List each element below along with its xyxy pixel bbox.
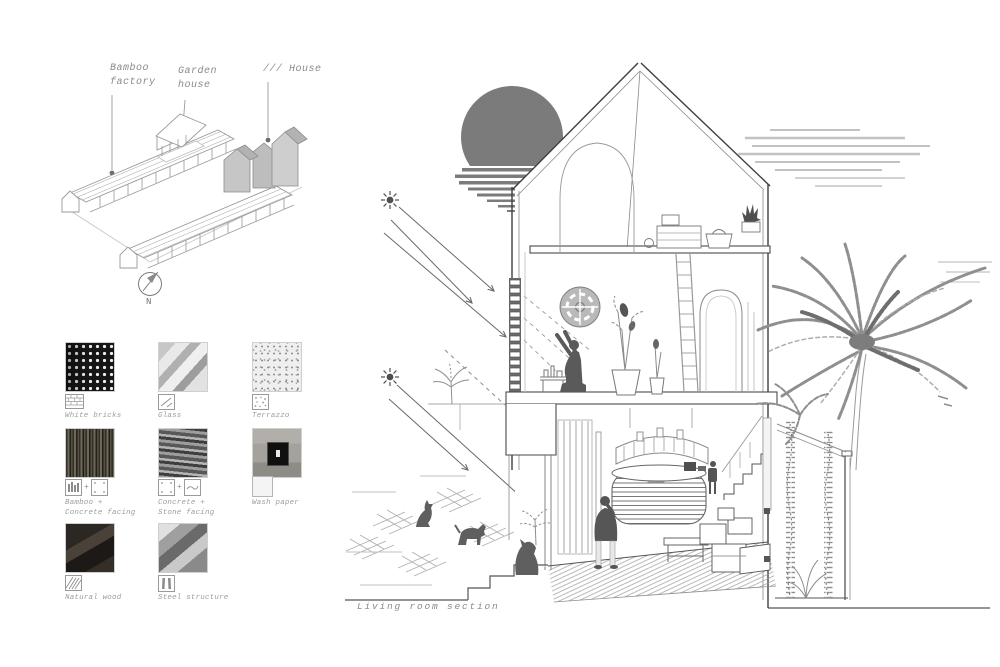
concrete-stone-photo <box>158 428 208 478</box>
brick-pattern-icon <box>65 394 84 409</box>
concrete-facing-icon <box>158 479 175 496</box>
terrazzo-photo <box>252 342 302 392</box>
bamboo-concrete-photo <box>65 428 115 478</box>
wash-paper-icon <box>252 476 273 497</box>
line-art-drawing <box>0 0 1000 667</box>
terrazzo-icon <box>252 394 269 410</box>
steel-structure-label: Steel structure <box>158 594 229 604</box>
label-bamboo-factory: Bamboofactory <box>110 62 156 89</box>
wash-paper-photo <box>252 428 302 478</box>
architecture-sheet: Bamboofactory Gardenhouse /// House N Li… <box>0 0 1000 667</box>
section-drawing <box>345 63 992 608</box>
wood-hatch-icon <box>65 575 82 591</box>
bamboo-concrete-icons: + <box>65 479 108 496</box>
label-house: /// House <box>263 63 322 77</box>
site-plan-drawing <box>62 82 307 296</box>
glass-icon <box>158 394 175 410</box>
bamboo-factory-building <box>62 130 236 212</box>
wall-medallion-ornament <box>560 287 600 327</box>
steel-structure-photo <box>158 523 208 573</box>
wash-paper-label: Wash paper <box>252 499 299 509</box>
white-bricks-label: White bricks <box>65 412 121 422</box>
glass-label: Glass <box>158 412 182 422</box>
steel-beam-icon <box>158 575 175 592</box>
house-buildings <box>224 127 307 192</box>
concrete-stone-icons: + <box>158 479 201 496</box>
terrazzo-label: Terrazzo <box>252 412 290 422</box>
concrete-stone-label: Concrete +Stone facing <box>158 499 214 519</box>
natural-wood-photo <box>65 523 115 573</box>
bamboo-icon <box>65 479 82 496</box>
white-bricks-photo <box>65 342 115 392</box>
natural-wood-label: Natural wood <box>65 594 121 604</box>
sun-symbol-upper <box>381 191 399 209</box>
north-compass <box>139 272 162 296</box>
concrete-facing-icon <box>91 479 108 496</box>
bamboo-factory-building-2 <box>120 186 294 268</box>
glass-photo <box>158 342 208 392</box>
bamboo-concrete-label: Bamboo +Concrete facing <box>65 499 136 519</box>
cloud-lines <box>738 130 992 282</box>
compass-north-label: N <box>146 297 151 307</box>
courtyard-garden <box>775 420 852 600</box>
sun-symbol-lower <box>381 368 399 386</box>
section-caption: Living room section <box>357 601 500 612</box>
label-garden-house: Gardenhouse <box>178 65 217 92</box>
stone-facing-icon <box>184 479 201 496</box>
